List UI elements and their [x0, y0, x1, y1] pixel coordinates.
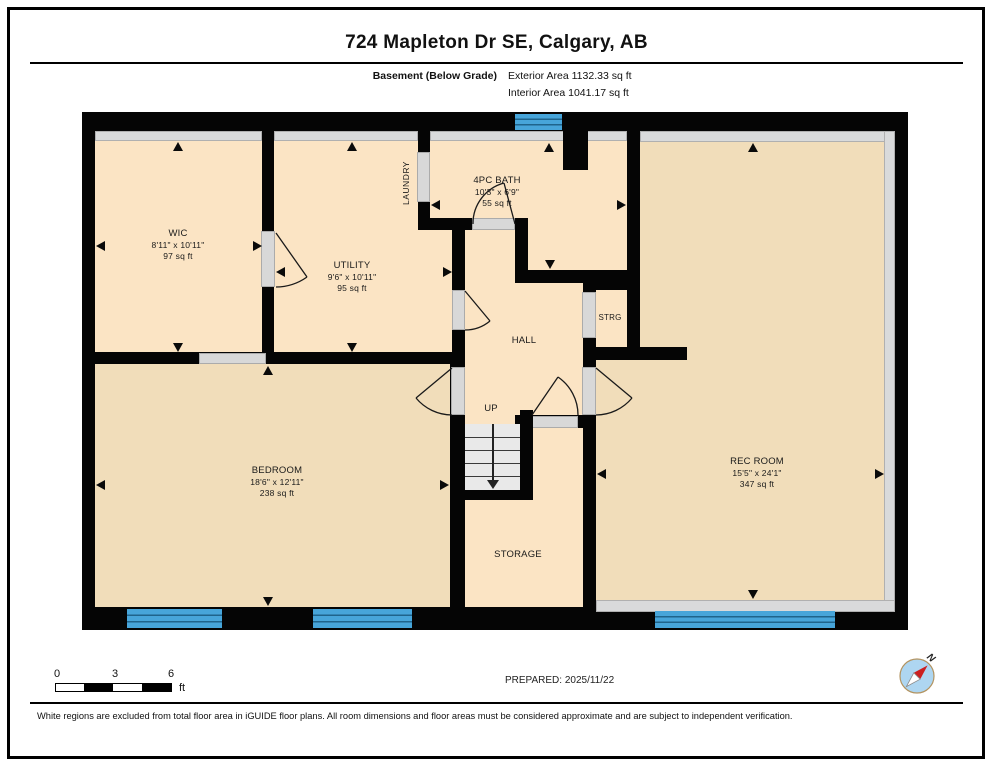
- dimension-arrow: [617, 200, 626, 210]
- room-label-wic: WIC 8'11" x 10'11" 97 sq ft: [152, 228, 205, 262]
- room-label-storage: STORAGE: [494, 549, 542, 561]
- dimension-arrow: [96, 480, 105, 490]
- room-label-strg: STRG: [598, 313, 621, 323]
- window: [313, 609, 412, 628]
- dimension-arrow: [263, 366, 273, 375]
- stair-direction-arrow-icon: [487, 480, 499, 489]
- dimension-arrow: [276, 267, 285, 277]
- scale-bar-segment: [142, 684, 171, 691]
- room-storage-upper: [533, 428, 583, 500]
- dimension-arrow: [263, 597, 273, 606]
- scale-label-3: 3: [112, 668, 118, 680]
- door-opening-rec: [582, 367, 596, 415]
- stair-direction-line: [492, 424, 494, 480]
- dimension-arrow: [173, 343, 183, 352]
- dimension-arrow: [545, 260, 555, 269]
- dimension-arrow: [347, 343, 357, 352]
- room-rec-upper: [640, 142, 884, 360]
- window: [655, 611, 835, 628]
- window: [515, 114, 562, 130]
- scale-label-0: 0: [54, 668, 60, 680]
- room-label-bedroom: BEDROOM 18'6" x 12'11" 238 sq ft: [250, 465, 304, 499]
- dimension-arrow: [544, 143, 554, 152]
- prepared-date: PREPARED: 2025/11/22: [505, 675, 614, 686]
- door-opening-storage: [531, 416, 578, 428]
- interior-area: Interior Area 1041.17 sq ft: [508, 87, 629, 99]
- dimension-arrow: [431, 200, 440, 210]
- door-opening-laundry: [417, 152, 430, 202]
- dimension-arrow: [96, 241, 105, 251]
- room-bath: [430, 141, 627, 218]
- room-label-bath: 4PC BATH 10'3" x 6'9" 55 sq ft: [473, 175, 520, 209]
- cased-opening-wic-bedroom: [199, 353, 266, 364]
- footer-divider: [30, 702, 963, 704]
- dimension-arrow: [440, 480, 449, 490]
- window: [127, 609, 222, 628]
- door-opening-bedroom: [451, 367, 465, 415]
- disclaimer-text: White regions are excluded from total fl…: [37, 711, 793, 721]
- dimension-arrow: [875, 469, 884, 479]
- dimension-arrow: [748, 143, 758, 152]
- wic-sill: [95, 131, 262, 141]
- room-label-laundry: LAUNDRY: [401, 161, 411, 205]
- room-hall: [465, 230, 515, 424]
- dimension-arrow: [173, 142, 183, 151]
- utility-sill: [274, 131, 418, 141]
- room-label-hall: HALL: [512, 335, 537, 347]
- room-label-utility: UTILITY 9'6" x 10'11" 95 sq ft: [328, 260, 377, 294]
- room-label-rec: REC ROOM 15'5" x 24'1" 347 sq ft: [730, 456, 784, 490]
- floor-label: Basement (Below Grade): [280, 70, 497, 82]
- door-opening-bath: [472, 218, 515, 230]
- door-opening-wic: [261, 231, 275, 287]
- scale-unit-label: ft: [179, 682, 185, 694]
- wall-stub: [583, 347, 687, 360]
- dimension-arrow: [347, 142, 357, 151]
- scale-bar: [55, 683, 172, 692]
- scale-label-6: 6: [168, 668, 174, 680]
- exterior-area: Exterior Area 1132.33 sq ft: [508, 70, 632, 82]
- page-title: 724 Mapleton Dr SE, Calgary, AB: [0, 32, 993, 54]
- door-opening-strg: [582, 292, 596, 338]
- dimension-arrow: [597, 469, 606, 479]
- room-utility-ext: [418, 230, 452, 352]
- rec-window-sill-right: [884, 131, 895, 612]
- chimney: [563, 128, 588, 170]
- stair-wall-right: [520, 410, 533, 500]
- door-opening-utility-hall: [452, 290, 465, 330]
- dimension-arrow: [748, 590, 758, 599]
- dimension-arrow: [253, 241, 262, 251]
- scale-bar-segment: [84, 684, 113, 691]
- bath-sill: [430, 131, 627, 141]
- stair-wall-bottom: [452, 490, 533, 500]
- floorplan-page: 724 Mapleton Dr SE, Calgary, AB Basement…: [0, 0, 993, 768]
- header-divider: [30, 62, 963, 64]
- room-hall-east: [515, 283, 583, 415]
- room-bath-ext: [528, 218, 627, 270]
- staircase: [465, 424, 520, 490]
- dimension-arrow: [443, 267, 452, 277]
- stair-up-label: UP: [484, 403, 498, 415]
- room-utility: [274, 141, 418, 352]
- rec-window-sill-top: [640, 131, 895, 142]
